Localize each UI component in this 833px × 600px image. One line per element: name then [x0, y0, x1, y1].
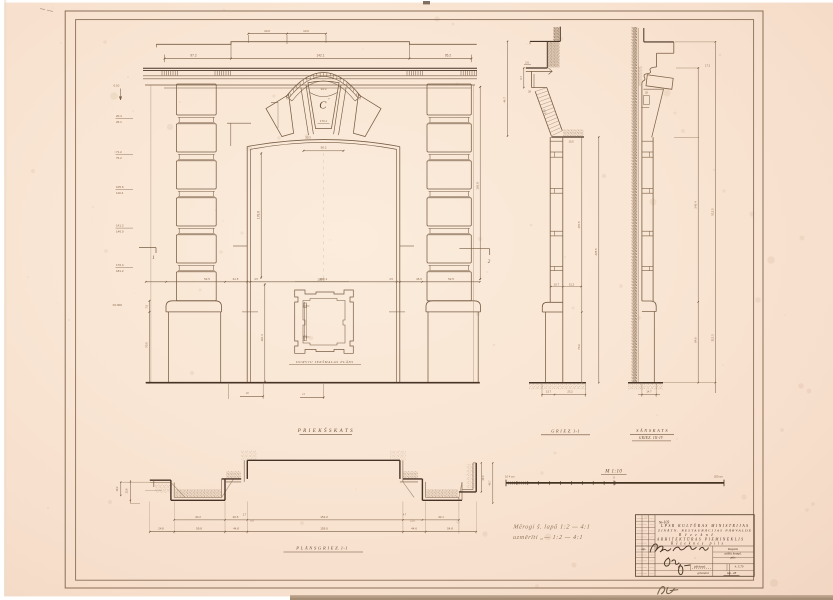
- svg-text:170.1: 170.1: [320, 119, 328, 123]
- svg-text:84.0: 84.0: [693, 337, 697, 343]
- svg-text:10: 10: [246, 391, 250, 395]
- svg-text:159.0: 159.0: [320, 527, 328, 531]
- svg-text:178.6: 178.6: [256, 211, 260, 219]
- svg-text:13.7: 13.7: [546, 389, 552, 393]
- svg-text:±0.000: ±0.000: [113, 303, 123, 307]
- svg-text:pils: pils: [730, 556, 736, 560]
- svg-text:13.6: 13.6: [126, 488, 129, 493]
- svg-text:90.2: 90.2: [321, 146, 327, 150]
- svg-text:45.6: 45.6: [416, 277, 422, 281]
- svg-text:142.1: 142.1: [317, 54, 325, 58]
- svg-text:54.8: 54.8: [447, 527, 453, 531]
- svg-text:10 4 cm: 10 4 cm: [505, 474, 515, 478]
- svg-text:152.0: 152.0: [320, 515, 328, 519]
- svg-text:1: 1: [152, 256, 155, 261]
- svg-text:30.3: 30.3: [305, 136, 311, 140]
- svg-text:70.9: 70.9: [145, 342, 149, 348]
- svg-text:71.2: 71.2: [116, 150, 122, 154]
- svg-text:2.6: 2.6: [525, 61, 529, 64]
- svg-text:105.6: 105.6: [116, 185, 124, 189]
- svg-text:Kapela: Kapela: [727, 547, 738, 551]
- svg-text:52.5: 52.5: [448, 277, 454, 281]
- svg-text:52.5: 52.5: [204, 277, 210, 281]
- svg-text:7.5: 7.5: [145, 304, 149, 308]
- svg-text:200 cm: 200 cm: [714, 474, 724, 478]
- svg-text:478.5: 478.5: [594, 248, 598, 256]
- svg-text:20.5: 20.5: [233, 515, 239, 519]
- svg-text:95.2: 95.2: [445, 54, 451, 58]
- svg-text:24.8: 24.8: [158, 527, 164, 531]
- svg-text:uzmērīti „— 1:2 — 4:1: uzmērīti „— 1:2 — 4:1: [513, 534, 584, 541]
- svg-text:P R I E K Š S K A T S: P R I E K Š S K A T S: [297, 428, 354, 434]
- svg-text:P L Ā N S G R I E Z. 1-1: P L Ā N S G R I E Z. 1-1: [295, 545, 347, 550]
- svg-text:0.10: 0.10: [114, 84, 120, 88]
- svg-text:512.5: 512.5: [711, 208, 715, 216]
- svg-text:ZINĀTN. RESTAURĀCIJAS PĀRVALDE: ZINĀTN. RESTAURĀCIJAS PĀRVALDE: [658, 528, 752, 533]
- svg-text:10.0: 10.0: [264, 29, 270, 33]
- svg-text:G R I E Z. 1-1: G R I E Z. 1-1: [551, 428, 580, 433]
- svg-text:DURVJU IEKŠMALAS PLĀNS: DURVJU IEKŠMALAS PLĀNS: [295, 359, 354, 364]
- svg-text:4.5: 4.5: [254, 277, 258, 281]
- svg-text:GRIEZ. III-IV: GRIEZ. III-IV: [639, 436, 664, 440]
- svg-text:griezumi: griezumi: [697, 571, 708, 575]
- svg-text:110.4: 110.4: [116, 191, 124, 195]
- svg-text:31.2: 31.2: [569, 282, 575, 286]
- svg-text:1 4 2 : 1: 1 4 2 : 1: [320, 70, 329, 72]
- svg-text:192.8: 192.8: [475, 182, 479, 190]
- svg-text:245.4: 245.4: [693, 201, 697, 209]
- svg-text:pārbaud.: pārbaud.: [693, 564, 706, 568]
- svg-text:10.5: 10.5: [569, 140, 575, 144]
- svg-text:146.0: 146.0: [116, 229, 124, 233]
- svg-text:59.8: 59.8: [196, 527, 202, 531]
- svg-text:93.0: 93.0: [321, 87, 327, 91]
- svg-text:ARHITEKTŪRAS PIEMINEKLIS: ARHITEKTŪRAS PIEMINEKLIS: [656, 536, 743, 541]
- svg-text:23.2: 23.2: [567, 389, 573, 393]
- svg-text:14.7: 14.7: [646, 389, 652, 393]
- svg-text:10.0: 10.0: [303, 29, 309, 33]
- svg-text:110.4: 110.4: [260, 334, 264, 342]
- svg-text:181.2: 181.2: [116, 269, 124, 273]
- svg-text:97.2: 97.2: [190, 54, 196, 58]
- svg-text:44.6: 44.6: [411, 527, 417, 531]
- svg-text:Mērogi š. lapā 1:2 — 4:1: Mērogi š. lapā 1:2 — 4:1: [512, 524, 591, 531]
- svg-text:C: C: [319, 101, 327, 112]
- svg-text:176.4: 176.4: [116, 263, 124, 267]
- svg-text:10.7: 10.7: [554, 282, 560, 286]
- svg-text:S Ā N S K A T S: S Ā N S K A T S: [636, 428, 668, 433]
- svg-text:170.5: 170.5: [577, 221, 581, 228]
- svg-text:4. 5.70: 4. 5.70: [735, 564, 744, 568]
- svg-text:17.2: 17.2: [705, 64, 711, 68]
- svg-text:izp.: izp.: [641, 547, 646, 551]
- svg-text:141.2: 141.2: [116, 224, 124, 228]
- svg-text:41.5: 41.5: [233, 277, 239, 281]
- svg-text:312.3: 312.3: [711, 334, 715, 341]
- svg-text:44.8: 44.8: [233, 527, 239, 531]
- svg-text:40.7: 40.7: [488, 480, 492, 486]
- svg-text:4.5: 4.5: [389, 277, 393, 281]
- svg-text:74.6: 74.6: [577, 344, 581, 350]
- svg-text:76.2: 76.2: [116, 156, 122, 160]
- svg-text:20.4: 20.4: [116, 114, 122, 118]
- svg-text:16.2: 16.2: [116, 486, 119, 491]
- svg-text:21.0: 21.0: [410, 520, 415, 523]
- svg-text:lap. 28: lap. 28: [727, 571, 737, 575]
- svg-text:M 1:10: M 1:10: [604, 469, 622, 474]
- svg-text:26.1: 26.1: [116, 120, 122, 124]
- svg-text:44.7: 44.7: [503, 97, 507, 103]
- svg-text:29.0: 29.0: [481, 475, 485, 481]
- svg-text:40.1: 40.1: [438, 515, 444, 519]
- svg-text:40.2: 40.2: [195, 515, 201, 519]
- svg-text:4.7: 4.7: [519, 76, 523, 80]
- svg-text:152.1: 152.1: [317, 277, 325, 281]
